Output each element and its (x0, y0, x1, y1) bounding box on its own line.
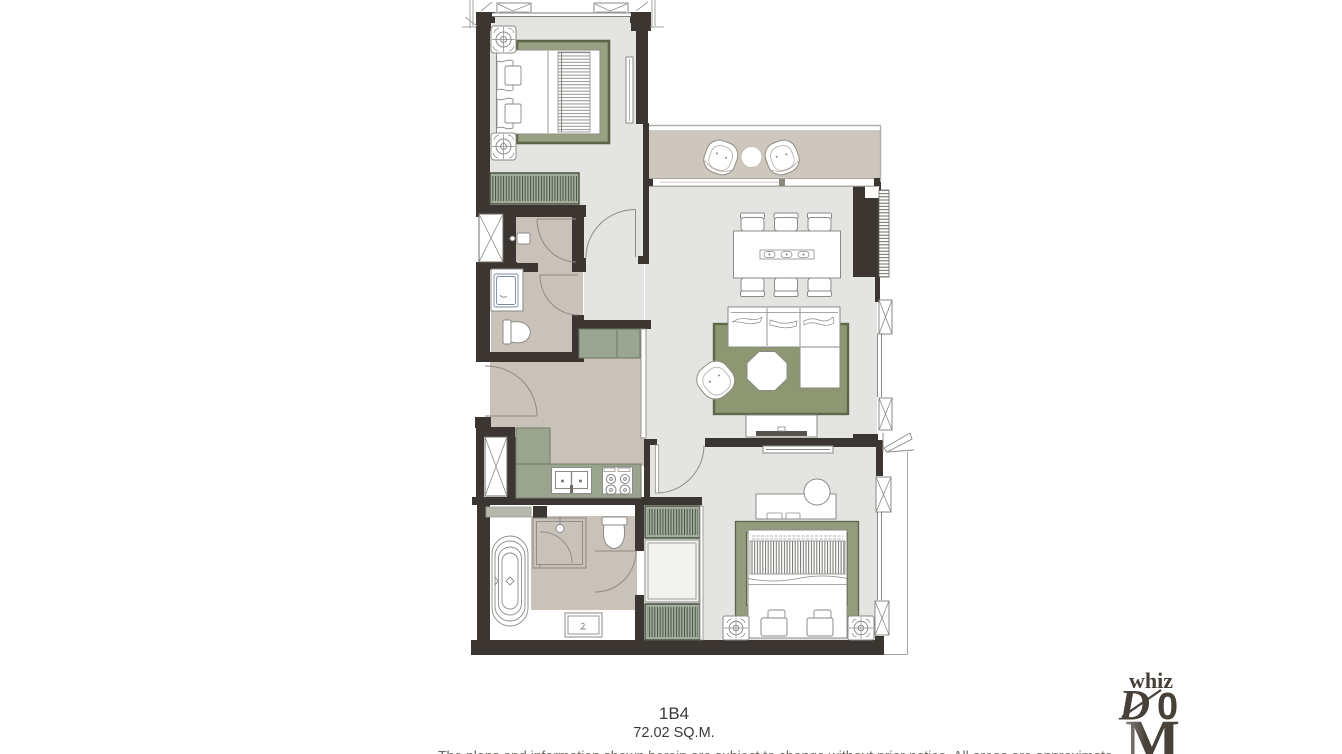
svg-text:72.02 SQ.M.: 72.02 SQ.M. (633, 725, 714, 741)
svg-text:M: M (1125, 708, 1180, 754)
svg-text:The plans and information show: The plans and information shown herein a… (438, 748, 1117, 754)
svg-text:1B4: 1B4 (659, 704, 689, 723)
